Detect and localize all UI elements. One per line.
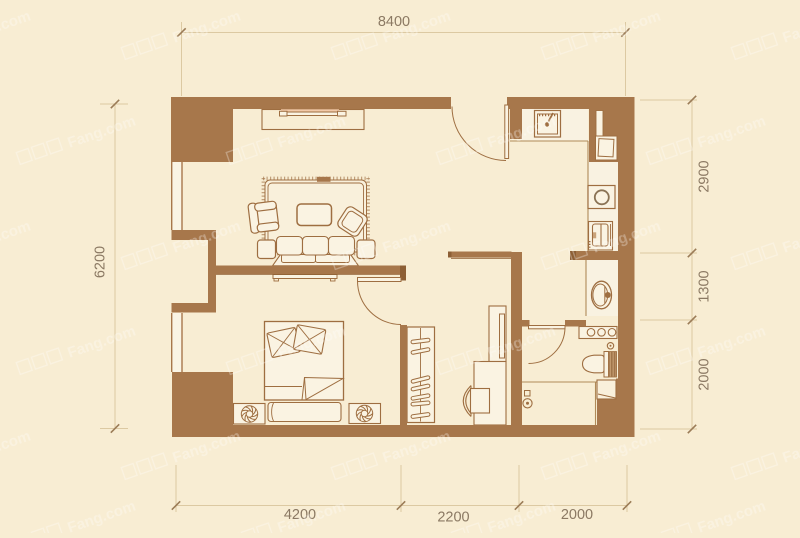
svg-text:1300: 1300 — [697, 270, 713, 302]
svg-text:2200: 2200 — [437, 510, 469, 526]
svg-text:2900: 2900 — [697, 160, 713, 192]
svg-text:6200: 6200 — [93, 246, 109, 278]
svg-text:2000: 2000 — [561, 507, 593, 523]
svg-text:2000: 2000 — [697, 358, 713, 390]
